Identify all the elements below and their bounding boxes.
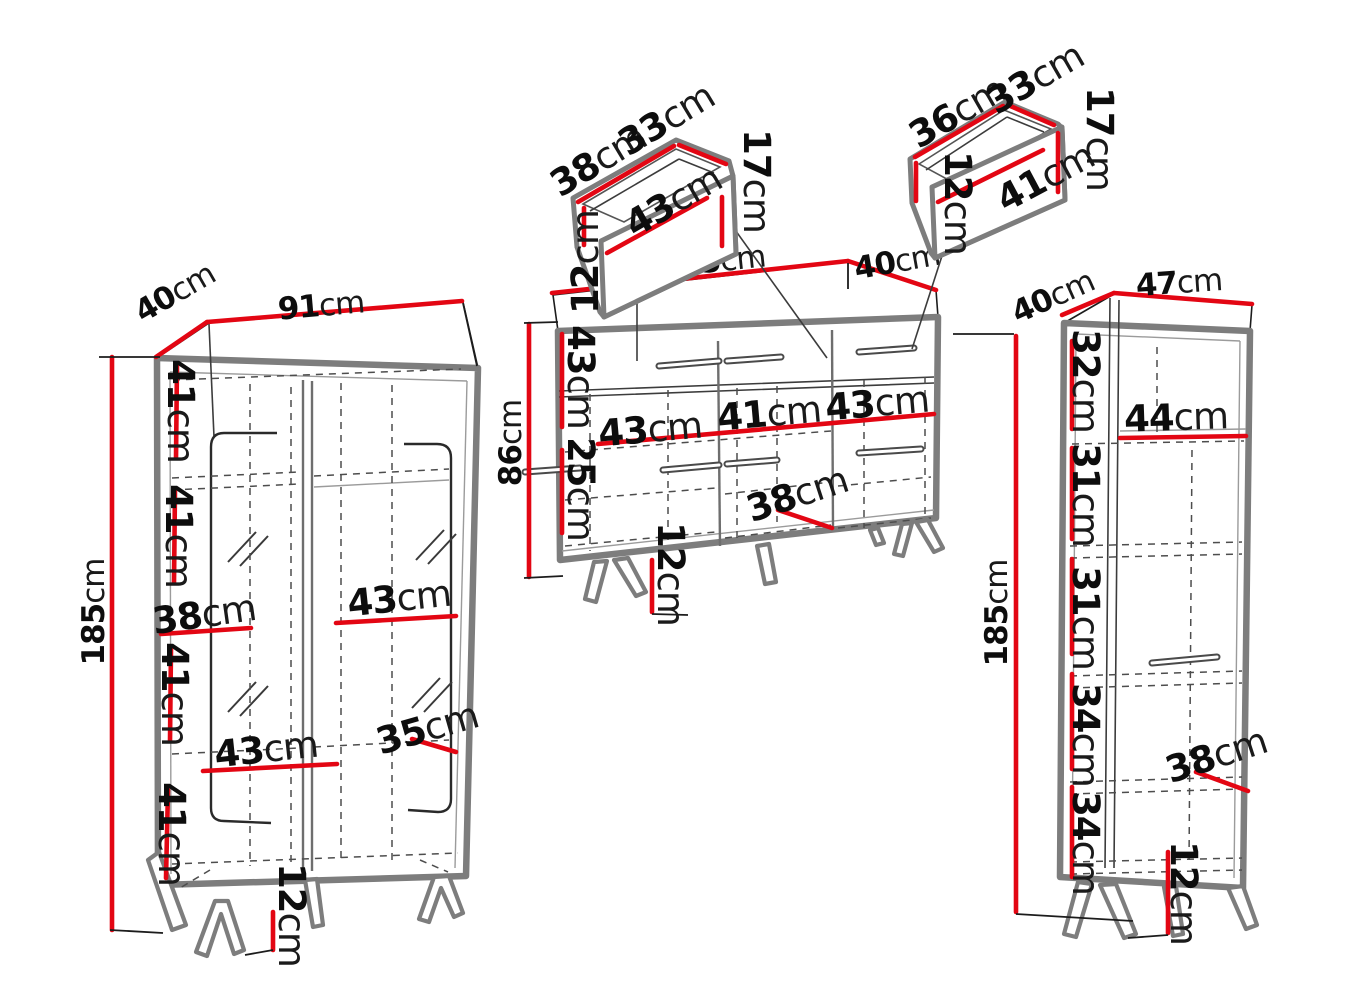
dim-drawer-right-back-width: 33cm [979,33,1090,122]
dim-sideboard-height: 86cm [493,400,529,486]
dim-drawer-left-height: 17cm [736,129,779,233]
leg [757,544,776,584]
drawer-box-right: 36cm 33cm 17cm 41cm 12cm [901,33,1121,258]
dim-drawer-left-front-height: 12cm [564,210,607,314]
dim-cabinet-left-leg-height: 12cm [271,863,314,967]
dim-cabinet-right-height: 185cm [979,560,1015,667]
leg [419,876,463,922]
dim-cabinet-left-section-2: 41cm [158,484,201,588]
dim-cabinet-right-shelf-width: 44cm [1123,394,1228,441]
dim-sideboard-inner-middle: 41cm [715,387,822,439]
dim-sideboard-leg-height: 12cm [650,522,693,626]
diagram-canvas: 40cm 91cm 185cm 41cm 41cm 38cm 43cm 41cm… [0,0,1345,1008]
leg [196,901,244,956]
leg [1228,886,1257,929]
tall-cabinet-left: 40cm 91cm 185cm 41cm 41cm 38cm 43cm 41cm… [76,256,483,967]
leg [894,523,912,556]
dim-cabinet-left-depth: 40cm [129,256,222,330]
dim-cabinet-right-section-2: 31cm [1065,443,1108,547]
dim-cabinet-right-leg-height: 12cm [1163,841,1206,945]
dim-cabinet-left-section-4: 41cm [151,782,194,886]
dim-sideboard-inner-right: 43cm [823,377,930,429]
leg [916,520,943,552]
dim-cabinet-left-section-3: 41cm [154,642,197,746]
dim-sideboard-inner-left: 43cm [596,403,703,455]
dim-drawer-right-front-height: 12cm [937,151,980,255]
dim-cabinet-left-height: 185cm [76,559,112,666]
sideboard: 135cm 40cm 86cm 43cm 25cm 43cm 41cm 43cm… [493,237,943,626]
dim-sideboard-bottom-section: 25cm [560,437,603,541]
leg [614,558,646,596]
dim-cabinet-right-section-5: 34cm [1065,791,1108,895]
tall-cabinet-right: 40cm 47cm 185cm 32cm 44cm 31cm 31cm 34cm… [953,262,1272,945]
dim-cabinet-left-section-1: 41cm [160,359,203,463]
dim-cabinet-right-section-3: 31cm [1065,566,1108,670]
dim-cabinet-right-section-1: 32cm [1065,329,1108,433]
dim-cabinet-right-width: 47cm [1135,262,1224,304]
leg [585,561,607,602]
dim-cabinet-right-section-4: 34cm [1065,683,1108,787]
dim-cabinet-left-width: 91cm [276,284,365,327]
leg [870,528,884,545]
furniture-dimension-diagram: 40cm 91cm 185cm 41cm 41cm 38cm 43cm 41cm… [0,0,1345,1008]
